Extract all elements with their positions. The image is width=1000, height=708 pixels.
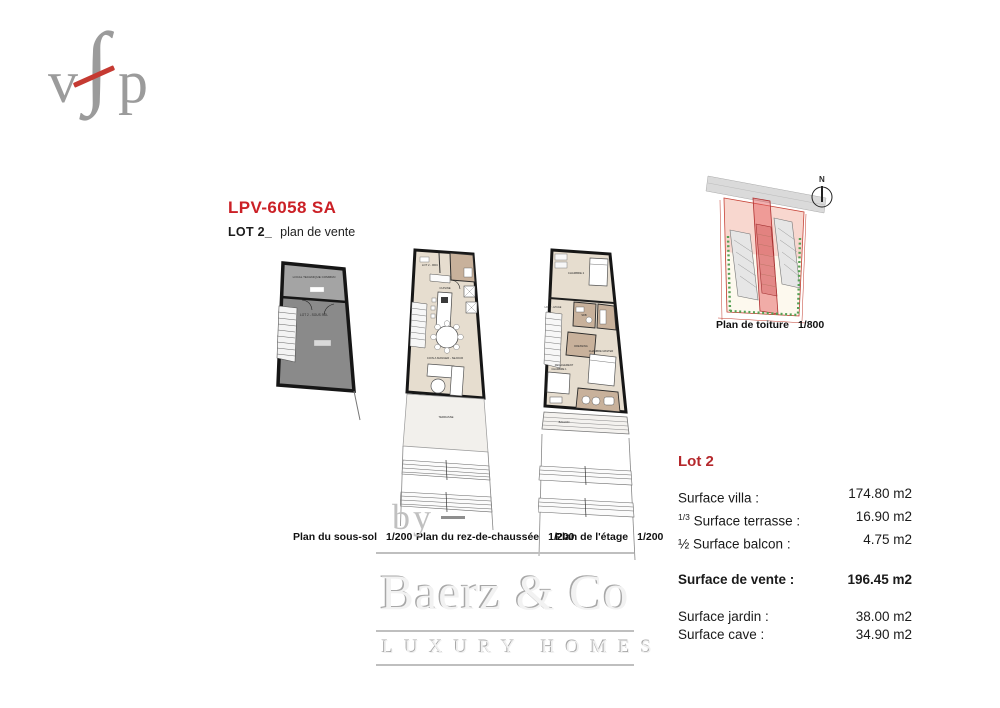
surface-value: 34.90 m2 [856, 626, 912, 645]
coffee-table [431, 379, 445, 393]
plan-toiture: N [698, 168, 843, 328]
surface-row-balcon: ½ Surface balcon : 4.75 m2 [678, 531, 912, 554]
watermark-by: by [392, 496, 434, 538]
surface-value: 38.00 m2 [856, 608, 912, 627]
plan-rdc: LOT 2 - RDC CUISINE COIN A MANGER - SEJO… [400, 226, 518, 536]
surface-label-text: Surface jardin : [678, 608, 769, 627]
plan-de-vente-page: v ∫ p LPV-6058 SA LOT 2_plan de vente [0, 0, 1000, 708]
surface-value: 16.90 m2 [856, 508, 912, 531]
label-sejour: COIN A MANGER - SEJOUR [427, 356, 463, 360]
bed-chambre2 [589, 258, 608, 286]
plan-sous-sol: LOCAL TECHNIQUE COMMUN LOT 2 - SOUS SOL [262, 250, 362, 425]
watermark-tagline: LUXURY HOMES [382, 632, 634, 664]
surface-label-text: Surface terrasse : [690, 514, 800, 529]
label-sdb: SDB [581, 313, 587, 317]
label-chambre1: CHAMBRE 1 [551, 367, 567, 371]
label-terrasse: TERRASSE [438, 415, 453, 419]
surface-label-text: Surface de vente : [678, 571, 794, 590]
label-balcon: BALCON [559, 420, 570, 424]
balcon [542, 412, 629, 434]
surface-label-text: Surface villa : [678, 491, 759, 506]
surface-value: 4.75 m2 [863, 531, 912, 554]
bed-master [588, 354, 616, 386]
surface-label: Surface villa : [678, 485, 759, 508]
cooktop [441, 297, 448, 303]
surface-label: 1/3 Surface terrasse : [678, 508, 800, 531]
surface-row-cave: Surface cave : 34.90 m2 [678, 626, 912, 645]
basement-stairs [277, 306, 297, 362]
label-lot-sous-sol: LOT 2 - SOUS SOL [300, 313, 328, 317]
label-master: CHAMBRE MASTER [589, 349, 614, 353]
lot-title-line: LOT 2_plan de vente [228, 225, 355, 239]
etage-stairs [544, 312, 562, 368]
watermark-rule-bottom [376, 664, 634, 666]
label-local-technique: LOCAL TECHNIQUE COMMUN [293, 275, 336, 279]
north-label: N [819, 175, 825, 184]
surface-label-text: Surface cave : [678, 626, 764, 645]
sofa [427, 364, 454, 378]
label-dressing: DRESSING [574, 344, 588, 348]
caption-rdc-text: Plan du rez-de-chaussée [416, 531, 539, 543]
surface-label: ½ Surface balcon : [678, 531, 791, 554]
project-code: LPV-6058 SA [228, 198, 355, 218]
caption-toiture: Plan de toiture1/800 [716, 319, 824, 331]
surface-table-title: Lot 2 [678, 453, 912, 470]
label-lot-etage: LOT 2 - ETAGE [545, 306, 562, 309]
label-degagement: DEGAGEMENT [555, 363, 574, 367]
surface-row-total: Surface de vente : 196.45 m2 [678, 571, 912, 590]
surface-table: Lot 2 Surface villa : 174.80 m2 1/3 Surf… [678, 453, 912, 645]
fraction-prefix: 1/3 [678, 512, 690, 522]
watermark-by-dash [441, 516, 465, 519]
logo-letter-p: p [118, 48, 148, 117]
bed-chambre1 [547, 372, 570, 394]
rdc-local-technique [450, 253, 475, 282]
caption-toiture-text: Plan de toiture [716, 319, 789, 331]
wc-fixture [420, 257, 429, 262]
watermark-brand: Baerz & Co [376, 554, 634, 630]
logo-letter-f: ∫ [84, 12, 109, 118]
label-lot-rdc: LOT 2 - RDC [422, 263, 438, 267]
surface-value: 196.45 m2 [847, 571, 912, 590]
caption-etage-text: Plan de l'étage [555, 531, 628, 543]
watermark-brand-block: Baerz & Co LUXURY HOMES [376, 552, 634, 666]
surface-row-villa: Surface villa : 174.80 m2 [678, 485, 912, 508]
vfp-logo: v ∫ p [48, 26, 188, 121]
closet [555, 262, 567, 268]
plan-etage: CHAMBRE 2 SDB LOT 2 - ETAGE DRESSING DEG… [538, 226, 650, 571]
lot-label: LOT 2_ [228, 225, 272, 239]
caption-etage: Plan de l'étage1/200 [555, 531, 663, 543]
caption-rdc: Plan du rez-de-chaussée1/200 [416, 531, 574, 543]
desk [550, 397, 562, 403]
header-block: LPV-6058 SA LOT 2_plan de vente [228, 198, 355, 239]
surface-row-terrasse: 1/3 Surface terrasse : 16.90 m2 [678, 508, 912, 531]
surface-row-jardin: Surface jardin : 38.00 m2 [678, 608, 912, 627]
closet [555, 254, 567, 260]
caption-sous-sol-text: Plan du sous-sol [293, 531, 377, 543]
rdc-terrace [403, 394, 488, 452]
surface-value: 174.80 m2 [848, 485, 912, 508]
caption-toiture-scale: 1/800 [798, 319, 824, 331]
sofa-chaise [450, 366, 464, 396]
surface-label-text: ½ Surface balcon : [678, 537, 791, 552]
plan-type-label: plan de vente [280, 225, 355, 239]
label-chambre2: CHAMBRE 2 [568, 271, 585, 275]
caption-etage-scale: 1/200 [637, 531, 663, 543]
label-cuisine: CUISINE [439, 286, 450, 290]
